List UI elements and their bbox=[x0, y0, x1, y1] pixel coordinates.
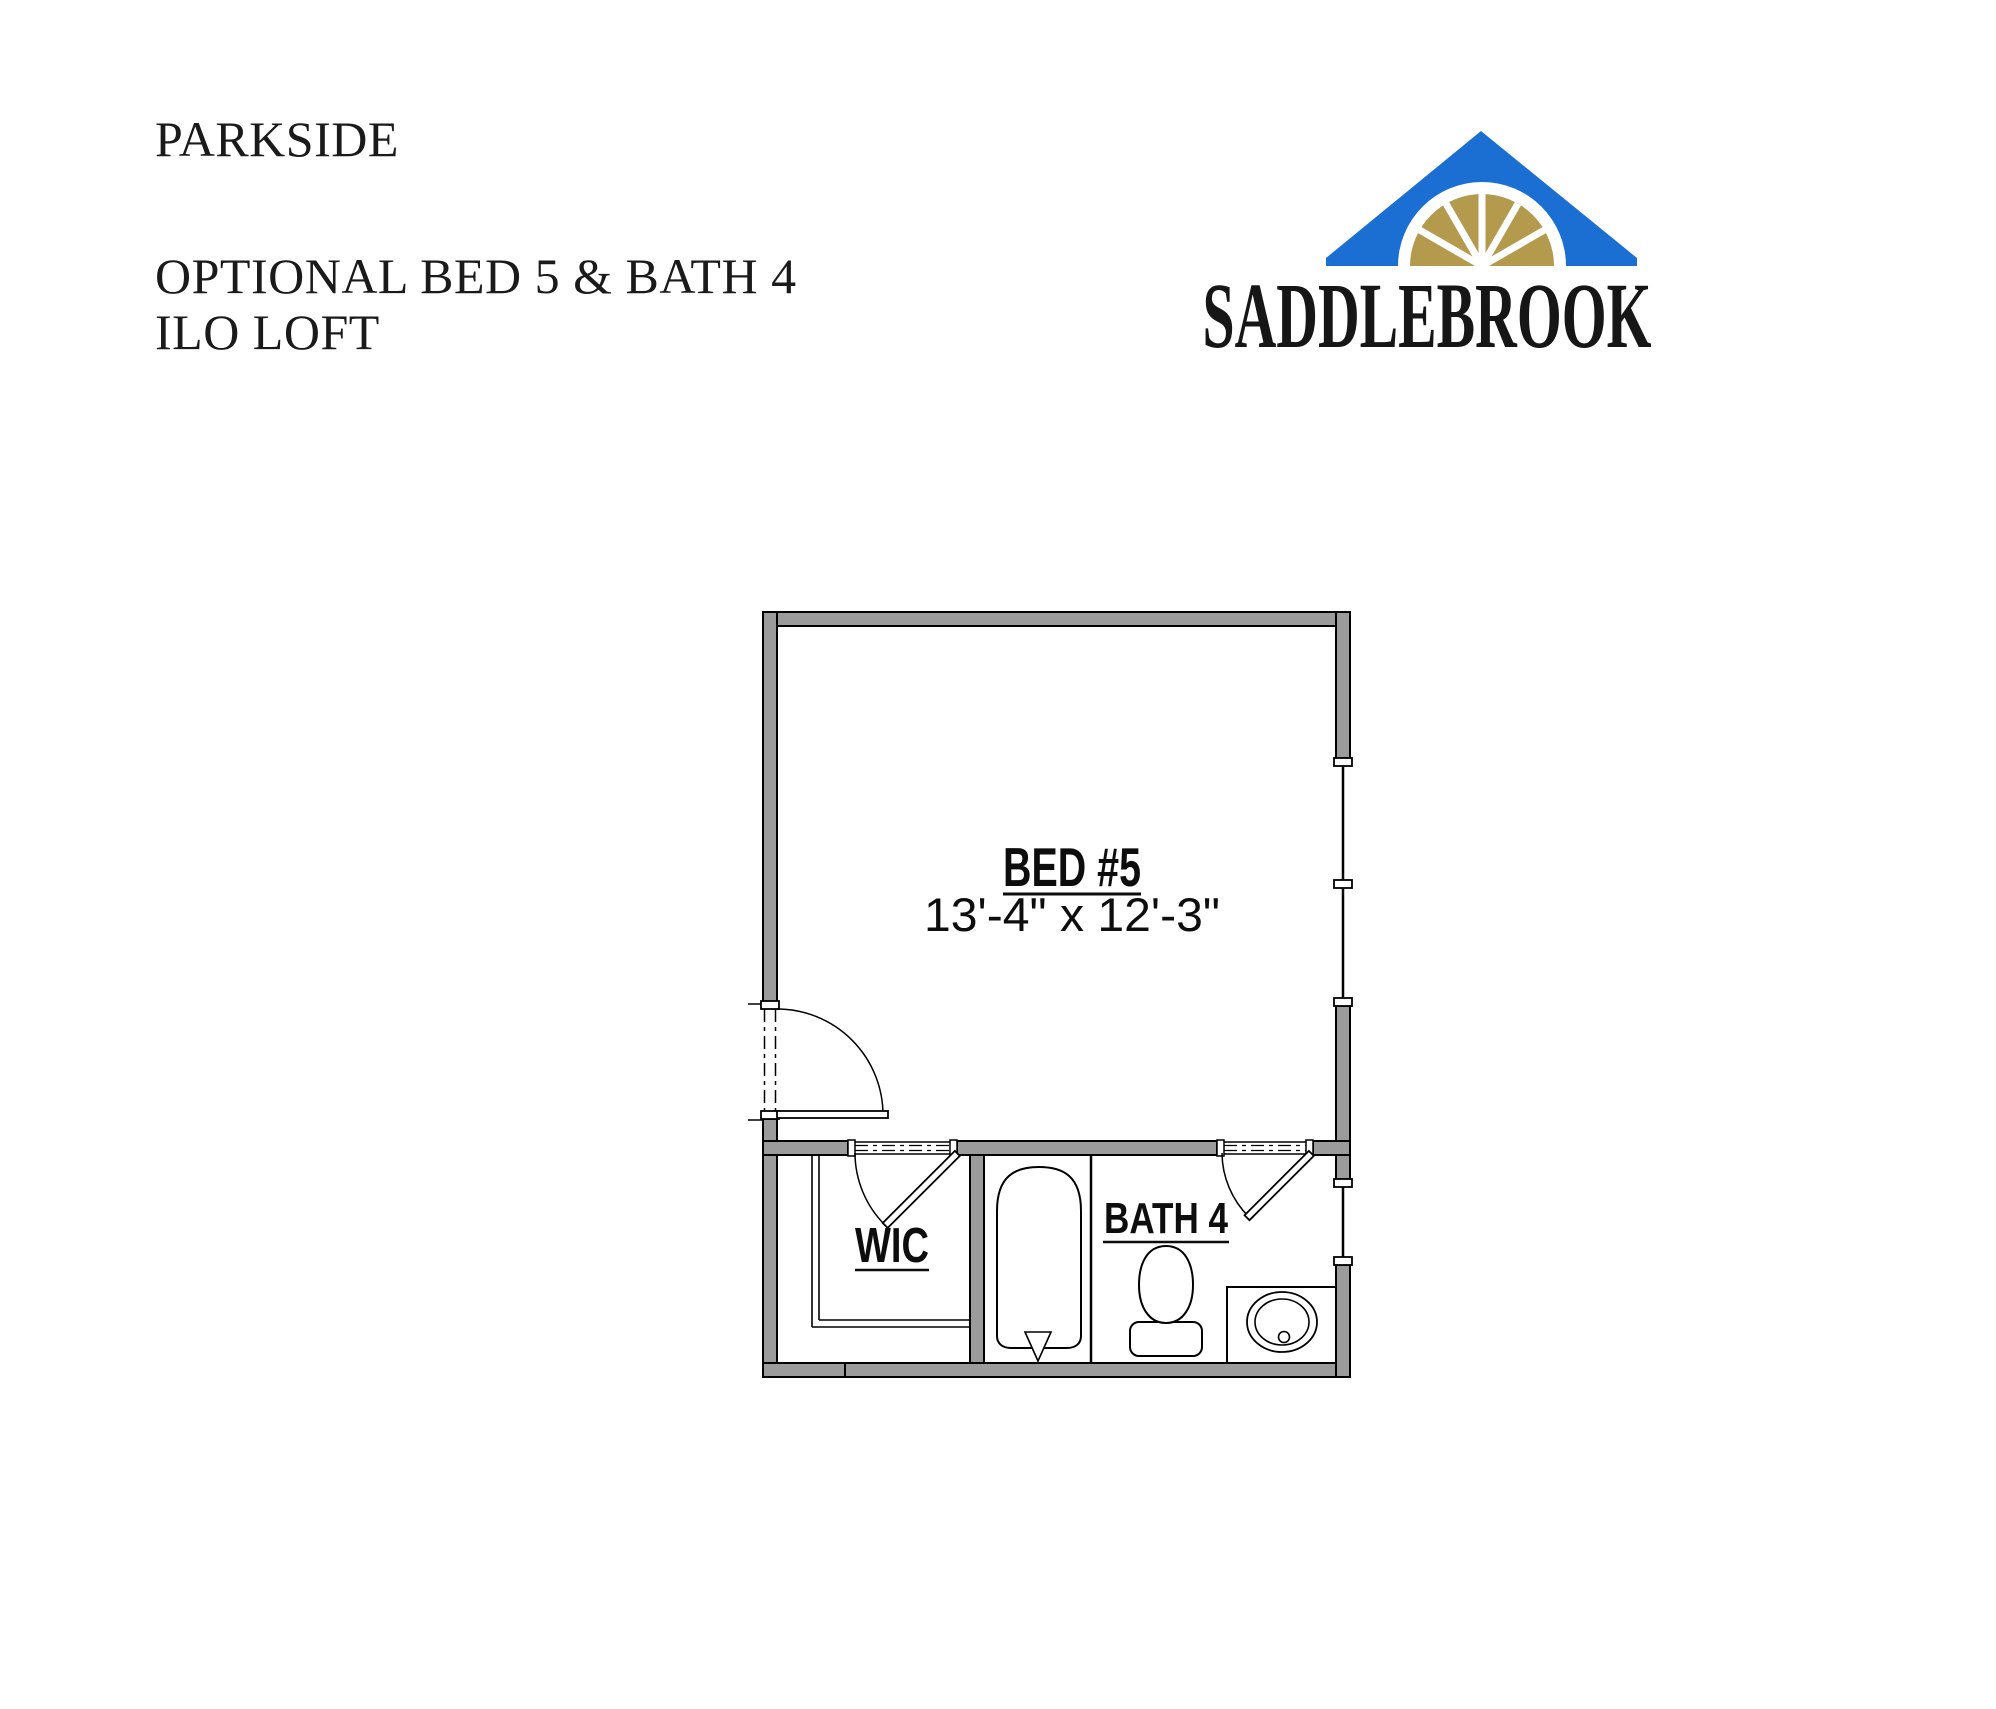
vanity-sink bbox=[1227, 1287, 1336, 1363]
door-leaf bbox=[883, 1151, 960, 1228]
wic-door bbox=[848, 1140, 960, 1228]
window-sill bbox=[1334, 1257, 1352, 1265]
wall-bottom bbox=[763, 1363, 1350, 1377]
page: { "page": { "background": "#ffffff" }, "… bbox=[0, 0, 1996, 1709]
wall-left-lower bbox=[763, 1119, 777, 1377]
bath-label: BATH 4 bbox=[1104, 1194, 1228, 1243]
door-jamb bbox=[1217, 1140, 1224, 1156]
wall-right-upper bbox=[1336, 612, 1350, 758]
drawing-canvas: SADDLEBROOK bbox=[0, 0, 1996, 1709]
bedroom-dimensions: 13'-4" x 12'-3" bbox=[924, 888, 1220, 941]
toilet-bowl bbox=[1139, 1246, 1193, 1323]
wall-separator-right bbox=[1313, 1141, 1350, 1155]
wall-top bbox=[763, 612, 1350, 626]
window-sill bbox=[1334, 1179, 1352, 1187]
door-swing-arc bbox=[777, 1009, 883, 1115]
sink-basin bbox=[1255, 1299, 1309, 1345]
toilet-tank bbox=[1130, 1322, 1202, 1356]
window-mullion bbox=[1334, 880, 1352, 888]
wall-wic-divider bbox=[970, 1155, 984, 1363]
door-jamb bbox=[848, 1140, 855, 1156]
door-leaf bbox=[1245, 1151, 1314, 1220]
floor-plan: BED #5 13'-4" x 12'-3" WIC BATH 4 bbox=[748, 612, 1352, 1377]
wall-right-lower bbox=[1336, 1265, 1350, 1377]
bath-door bbox=[1217, 1140, 1314, 1220]
bedroom-door bbox=[748, 1001, 888, 1120]
door-leaf bbox=[777, 1111, 888, 1118]
window-sill bbox=[1334, 998, 1352, 1006]
door-jamb bbox=[761, 1001, 779, 1009]
wall-left-upper bbox=[763, 612, 777, 1007]
sink-outer-rim bbox=[1247, 1292, 1317, 1352]
wic-label: WIC bbox=[855, 1219, 929, 1273]
saddlebrook-logo: SADDLEBROOK bbox=[1203, 131, 1652, 368]
toilet bbox=[1130, 1246, 1202, 1356]
bathtub bbox=[997, 1167, 1081, 1361]
window-sill bbox=[1334, 758, 1352, 766]
sink-drain-icon bbox=[1279, 1332, 1290, 1343]
wall-separator-left bbox=[763, 1141, 848, 1155]
wall-separator-middle bbox=[957, 1141, 1217, 1155]
door-swing-arc bbox=[855, 1153, 885, 1225]
logo-wordmark: SADDLEBROOK bbox=[1203, 265, 1652, 368]
